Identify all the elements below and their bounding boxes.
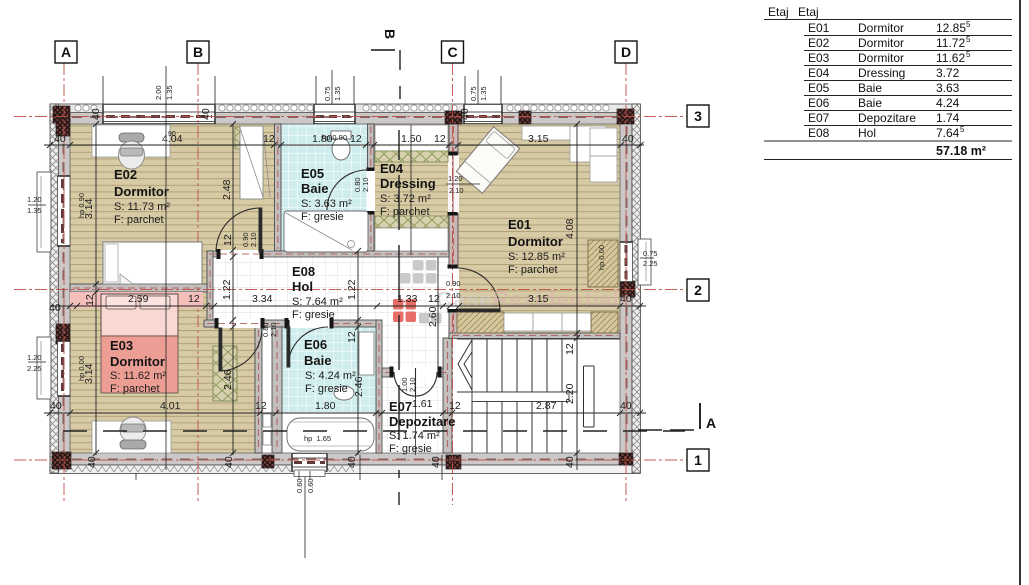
svg-text:F: parchet: F: parchet (110, 383, 160, 395)
svg-text:E02: E02 (114, 167, 137, 182)
svg-text:5: 5 (966, 20, 971, 29)
svg-text:2.10: 2.10 (249, 232, 258, 247)
svg-text:E01: E01 (808, 21, 830, 35)
svg-text:5: 5 (966, 35, 971, 44)
svg-text:2.46: 2.46 (353, 376, 365, 397)
svg-text:S: 11.62 m²: S: 11.62 m² (110, 370, 166, 382)
svg-text:Baie: Baie (858, 96, 882, 110)
svg-text:40: 40 (49, 302, 61, 314)
svg-text:F: gresie: F: gresie (292, 309, 335, 321)
svg-text:40: 40 (620, 400, 632, 412)
svg-text:B: B (193, 44, 203, 60)
svg-text:3.63: 3.63 (936, 81, 960, 95)
svg-text:E08: E08 (808, 126, 830, 140)
svg-text:1.80: 1.80 (315, 400, 336, 412)
svg-text:Dormitor: Dormitor (114, 184, 169, 199)
svg-text:E05: E05 (301, 166, 324, 181)
svg-text:2.87: 2.87 (536, 400, 557, 412)
svg-text:0.90: 0.90 (446, 279, 461, 288)
svg-text:Dressing: Dressing (380, 176, 436, 191)
svg-text:12.85: 12.85 (936, 21, 966, 35)
svg-text:2.10: 2.10 (361, 177, 370, 192)
svg-text:hp 0.90: hp 0.90 (77, 193, 86, 218)
svg-text:1.20: 1.20 (27, 195, 42, 204)
svg-text:2.10: 2.10 (446, 291, 461, 300)
svg-text:3.15: 3.15 (528, 133, 549, 145)
svg-text:12: 12 (188, 293, 200, 305)
svg-text:E01: E01 (508, 217, 531, 232)
svg-text:5: 5 (960, 125, 965, 134)
svg-text:Baie: Baie (304, 353, 331, 368)
svg-text:12: 12 (84, 294, 96, 306)
svg-text:4.08: 4.08 (564, 218, 576, 239)
svg-text:E07: E07 (808, 111, 830, 125)
svg-text:40: 40 (54, 133, 66, 145)
svg-text:40: 40 (430, 456, 442, 468)
svg-text:0.60: 0.60 (295, 478, 304, 493)
svg-text:Dormitor: Dormitor (858, 21, 904, 35)
svg-text:2.00: 2.00 (154, 85, 163, 100)
svg-text:2.10: 2.10 (269, 322, 278, 337)
svg-text:0.75: 0.75 (643, 249, 658, 258)
svg-text:12: 12 (350, 133, 362, 145)
svg-text:40: 40 (564, 456, 576, 468)
svg-text:Baie: Baie (301, 181, 328, 196)
svg-text:2.25: 2.25 (643, 259, 658, 268)
svg-text:2.20: 2.20 (564, 383, 576, 404)
svg-text:2.10: 2.10 (408, 377, 417, 392)
svg-text:C: C (447, 44, 457, 60)
svg-text:1.61: 1.61 (412, 398, 433, 410)
svg-text:E03: E03 (808, 51, 830, 65)
svg-text:A: A (61, 44, 71, 60)
svg-text:Hol: Hol (858, 126, 876, 140)
svg-text:57.18 m²: 57.18 m² (936, 144, 986, 158)
svg-text:E04: E04 (380, 161, 404, 176)
svg-text:S: 4.24 m²: S: 4.24 m² (305, 370, 356, 382)
svg-text:40: 40 (86, 456, 98, 468)
svg-text:E07: E07 (389, 399, 412, 414)
svg-text:Dormitor: Dormitor (508, 234, 563, 249)
svg-text:7.64: 7.64 (936, 126, 960, 140)
svg-text:S: 12.85 m²: S: 12.85 m² (508, 251, 565, 263)
svg-text:12: 12 (434, 133, 446, 145)
svg-text:40: 40 (622, 133, 634, 145)
svg-text:40: 40 (459, 108, 471, 120)
svg-text:hp 0.90: hp 0.90 (322, 133, 347, 142)
svg-text:A: A (706, 415, 716, 431)
svg-text:F: parchet: F: parchet (508, 264, 558, 276)
svg-text:E06: E06 (304, 337, 327, 352)
svg-text:3.34: 3.34 (252, 293, 273, 305)
svg-text:E08: E08 (292, 264, 315, 279)
svg-text:40: 40 (620, 293, 632, 305)
svg-text:Dormitor: Dormitor (858, 36, 904, 50)
svg-text:4.01: 4.01 (160, 400, 181, 412)
svg-text:Hol: Hol (292, 279, 313, 294)
svg-text:1.74: 1.74 (936, 111, 960, 125)
svg-text:1.20: 1.20 (448, 174, 463, 183)
svg-text:S: 11.73 m²: S: 11.73 m² (114, 201, 170, 213)
svg-text:12: 12 (263, 133, 275, 145)
svg-text:2: 2 (694, 282, 702, 298)
svg-text:1.20: 1.20 (27, 353, 42, 362)
svg-text:E04: E04 (808, 66, 830, 80)
svg-text:Etaj: Etaj (768, 5, 789, 19)
svg-text:F: parchet: F: parchet (114, 214, 164, 226)
svg-text:Baie: Baie (858, 81, 882, 95)
svg-text:40: 40 (223, 456, 235, 468)
svg-text:5: 5 (966, 50, 971, 59)
svg-text:0.60: 0.60 (306, 478, 315, 493)
svg-text:2.48: 2.48 (221, 179, 233, 200)
svg-text:Dressing: Dressing (858, 66, 905, 80)
svg-text:90: 90 (168, 131, 176, 138)
svg-text:1.35: 1.35 (165, 85, 174, 100)
svg-text:Dormitor: Dormitor (110, 354, 165, 369)
svg-text:12: 12 (222, 234, 234, 246)
svg-text:hp 1.65: hp 1.65 (304, 434, 331, 443)
svg-text:2.46: 2.46 (222, 369, 234, 390)
svg-text:E06: E06 (808, 96, 830, 110)
svg-text:0.75: 0.75 (323, 86, 332, 101)
svg-text:12: 12 (255, 400, 267, 412)
svg-text:1.22: 1.22 (346, 279, 358, 300)
svg-text:3: 3 (694, 108, 702, 124)
svg-text:0.75: 0.75 (469, 86, 478, 101)
svg-text:F: gresie: F: gresie (305, 383, 348, 395)
svg-text:12: 12 (449, 400, 461, 412)
svg-text:F: parchet: F: parchet (380, 206, 430, 218)
svg-text:11.62: 11.62 (936, 51, 965, 65)
svg-text:1.35: 1.35 (479, 86, 488, 101)
svg-text:1.35: 1.35 (333, 86, 342, 101)
svg-text:1.35: 1.35 (27, 206, 42, 215)
svg-text:hp 0.00: hp 0.00 (77, 356, 86, 381)
svg-text:2.60: 2.60 (427, 306, 439, 327)
svg-text:S: 3.72 m²: S: 3.72 m² (380, 193, 431, 205)
svg-text:40: 40 (50, 400, 62, 412)
svg-text:40: 40 (346, 456, 358, 468)
svg-text:S: 1.74 m²: S: 1.74 m² (389, 430, 440, 442)
svg-text:3.15: 3.15 (528, 293, 549, 305)
svg-text:12: 12 (564, 343, 576, 355)
svg-text:F: gresie: F: gresie (301, 211, 344, 223)
svg-text:40: 40 (90, 108, 102, 120)
svg-text:2.25: 2.25 (27, 364, 42, 373)
svg-text:B: B (382, 29, 398, 39)
svg-text:4.24: 4.24 (936, 96, 960, 110)
svg-text:1.22: 1.22 (221, 279, 233, 300)
svg-text:Depozitare: Depozitare (858, 111, 916, 125)
svg-text:Etaj: Etaj (798, 5, 819, 19)
svg-text:2.10: 2.10 (449, 186, 464, 195)
svg-text:11.72: 11.72 (936, 36, 965, 50)
svg-text:Depozitare: Depozitare (389, 414, 455, 429)
svg-text:12: 12 (346, 331, 358, 343)
svg-text:1.33: 1.33 (397, 293, 418, 305)
svg-text:1: 1 (694, 452, 702, 468)
svg-text:40: 40 (200, 108, 212, 120)
svg-text:2.59: 2.59 (128, 293, 149, 305)
svg-text:E02: E02 (808, 36, 830, 50)
svg-text:D: D (621, 44, 631, 60)
svg-text:S: 3.63 m²: S: 3.63 m² (301, 198, 352, 210)
svg-text:E03: E03 (110, 338, 133, 353)
svg-text:F: gresie: F: gresie (389, 443, 432, 455)
svg-text:3.72: 3.72 (936, 66, 960, 80)
svg-text:hp 0.00: hp 0.00 (597, 245, 606, 270)
svg-text:Dormitor: Dormitor (858, 51, 904, 65)
svg-text:E05: E05 (808, 81, 830, 95)
